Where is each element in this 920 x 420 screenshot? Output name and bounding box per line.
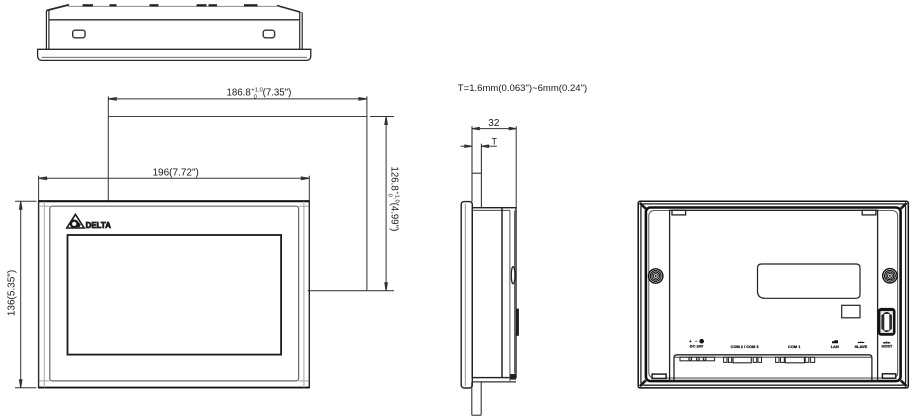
svg-text:DC 24V: DC 24V [690, 344, 704, 349]
svg-text:0: 0 [254, 95, 257, 101]
svg-text:T: T [492, 136, 498, 146]
svg-text:LAN: LAN [831, 344, 839, 349]
svg-text:126.8: 126.8 [389, 167, 400, 191]
svg-text:32: 32 [488, 118, 500, 129]
svg-text:HOST: HOST [882, 344, 893, 349]
svg-text:0: 0 [386, 194, 392, 197]
svg-text:(4.99"): (4.99") [389, 203, 400, 232]
svg-text:186.8: 186.8 [227, 87, 251, 98]
svg-text:COM 1: COM 1 [788, 344, 801, 349]
svg-text:(7.35"): (7.35") [263, 87, 292, 98]
svg-text:DELTA: DELTA [86, 221, 112, 230]
svg-text:196(7.72"): 196(7.72") [153, 167, 199, 178]
svg-text:SLAVE: SLAVE [855, 344, 868, 349]
svg-text:T=1.6mm(0.063")~6mm(0.24"): T=1.6mm(0.063")~6mm(0.24") [458, 83, 587, 94]
svg-text:136(5.35"): 136(5.35") [7, 270, 18, 316]
svg-text:+1.0: +1.0 [251, 88, 262, 94]
svg-text:+1.0: +1.0 [393, 191, 399, 202]
svg-text:COM 2 / COM 3: COM 2 / COM 3 [731, 344, 760, 349]
